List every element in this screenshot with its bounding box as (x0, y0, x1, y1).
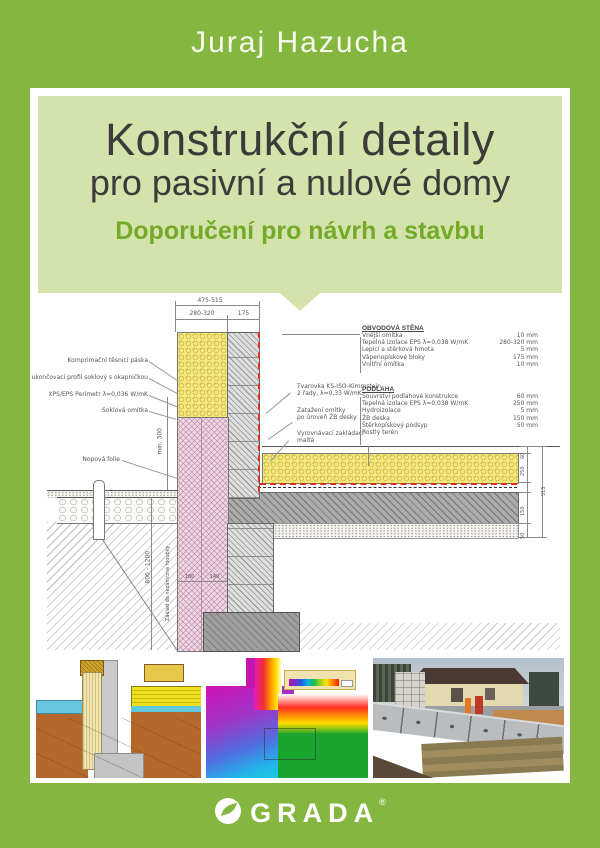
book-subtitle: Doporučení pro návrh a stavbu (38, 217, 562, 246)
leader-line (268, 422, 293, 440)
legend-value: 250 mm (513, 400, 538, 407)
dim-line (175, 305, 260, 306)
legend-value: 280-320 mm (499, 339, 538, 346)
construction-detail-drawing: 475-515 280-320 175 min. 300 800 - 1200 … (30, 293, 570, 655)
foundation-block-wall (227, 523, 274, 614)
legend-floor: PODLAHA Souvrství podlahové konstrukce60… (362, 386, 538, 436)
terrain-hatch-left (47, 522, 177, 650)
legend-row: Hydroizolace5 mm (362, 407, 538, 414)
legend-label: Lepící a stěrková hmota (362, 346, 521, 353)
label-box (144, 664, 184, 682)
dim-min300: min. 300 (156, 419, 163, 455)
leader-line (266, 393, 291, 414)
grada-leaf-icon (214, 797, 242, 830)
legend-value: 50 mm (517, 422, 538, 429)
dim-line (177, 581, 227, 582)
legend-row: Štěrkopískový podsyp50 mm (362, 422, 538, 429)
thumbnail-cad-detail (36, 658, 201, 778)
leader-line (149, 395, 177, 407)
legend-label: Vnější omítka (362, 332, 517, 339)
legend-value: 10 mm (517, 361, 538, 368)
wall-eps-insulation (177, 332, 229, 419)
legend-label: Štěrkopískový podsyp (362, 422, 517, 429)
legend-row: Rostlý terén (362, 429, 538, 436)
gas-bottle (465, 698, 471, 714)
legend-label: Souvrství podlahové konstrukce (362, 393, 517, 400)
legend-bracket (360, 397, 361, 445)
callout-profile: ukončovací profil soklový s okapničkou (30, 374, 148, 381)
callout-kimmstein-l2: 2 řady, λ=0,33 W/mK (297, 390, 362, 397)
dim-ext (519, 482, 531, 483)
dim-right-150: 150 (520, 496, 526, 516)
legend-wall: OBVODOVÁ STĚNA Vnější omítka10 mm Tepeln… (362, 325, 538, 368)
excavator (529, 672, 559, 706)
legend-row: Tepelná izolace EPS λ=0,038 W/mK280-320 … (362, 339, 538, 346)
dim-right-total: 515 (541, 476, 547, 496)
dim-right-50: 50 (520, 519, 526, 539)
legend-row: Souvrství podlahové konstrukce60 mm (362, 393, 538, 400)
callout-plaster: Soklová omítka (30, 407, 148, 414)
author-name: Juraj Hazucha (0, 26, 600, 60)
insulation-band-right (131, 686, 201, 708)
legend-row: Vnější omítka10 mm (362, 332, 538, 339)
house-roof (409, 668, 529, 684)
gravel-drainage (57, 497, 177, 524)
legend-value: 5 mm (521, 346, 538, 353)
thumbnail-thermal-simulation (206, 658, 368, 778)
leader-line (122, 460, 179, 479)
legend-wall-title: OBVODOVÁ STĚNA (362, 325, 538, 332)
contour-outline (264, 728, 316, 760)
xps-joint-line (201, 417, 202, 650)
dim-line (175, 319, 260, 320)
title-pointer-icon (280, 293, 320, 311)
dim-bottom1: 180 (177, 574, 202, 580)
legend-label: Hydroizolace (362, 407, 521, 414)
floor-eps-insulation (262, 453, 519, 484)
scale-legend-box (284, 670, 356, 690)
legend-value: 150 mm (513, 415, 538, 422)
dim-ext (227, 315, 228, 332)
dim-top-total: 475-515 (180, 297, 240, 304)
publisher-logo: GRADA® (0, 797, 600, 830)
publisher-name: GRADA (250, 798, 379, 828)
registered-mark: ® (379, 797, 386, 807)
legend-value: 5 mm (521, 407, 538, 414)
legend-label: Tepelná izolace EPS λ=0,038 W/mK (362, 400, 513, 407)
legend-value: 175 mm (513, 354, 538, 361)
dim-ext (259, 301, 260, 332)
hydro-layer-dashed (258, 487, 517, 488)
dim-top-right: 175 (229, 310, 258, 317)
gas-bottle (475, 696, 483, 714)
airtight-layer-horizontal (260, 483, 517, 485)
color-scale-icon (289, 679, 339, 686)
dim-right-250: 250 (520, 456, 526, 476)
dim-bottom2: 140 (202, 574, 227, 580)
book-cover: Juraj Hazucha Konstrukční detaily pro pa… (0, 0, 600, 848)
leader-line (149, 378, 178, 394)
book-title-line1: Konstrukční detaily (38, 116, 562, 163)
sand-lime-block-wall (227, 332, 260, 499)
callout-omitka-l1: Zatažení omítky (297, 407, 345, 414)
dim-depth: 800 - 1200 (144, 534, 151, 584)
callout-tape: Komprimační těsnicí páska (30, 357, 148, 364)
legend-bracket (360, 337, 361, 373)
dim-ext (519, 492, 531, 493)
book-title-line2: pro pasivní a nulové domy (38, 163, 562, 203)
rc-floor-slab (227, 492, 519, 525)
legend-row: ŽB deska150 mm (362, 415, 538, 422)
wall-step (246, 658, 255, 688)
legend-label: ŽB deska (362, 415, 513, 422)
legend-value: 60 mm (517, 393, 538, 400)
dim-ext (175, 301, 176, 332)
scale-unit-box (341, 680, 353, 687)
foundation-footing (203, 612, 300, 652)
legend-row: Tepelná izolace EPS λ=0,038 W/mK250 mm (362, 400, 538, 407)
callout-nopova: Nopová folie (60, 456, 120, 463)
legend-leader (282, 334, 360, 335)
legend-label: Tepelná izolace EPS λ=0,038 W/mK (362, 339, 499, 346)
dim-frost-note: Základ do nezámrzné hloubky (165, 511, 171, 621)
legend-row: Lepící a stěrková hmota5 mm (362, 346, 538, 353)
thumbnail-site-photo (373, 658, 564, 778)
house-window (485, 688, 495, 700)
callout-omitka-l2: po úroveň ŽB desky (297, 414, 357, 421)
legend-label: Vápenopískové bloky (362, 354, 513, 361)
legend-label: Vnitřní omítka (362, 361, 517, 368)
legend-row: Vápenopískové bloky175 mm (362, 354, 538, 361)
wood-planks (421, 737, 564, 778)
legend-floor-title: PODLAHA (362, 386, 538, 393)
legend-value: 10 mm (517, 332, 538, 339)
callout-xps: XPS/EPS Perimetr λ=0,036 W/mK (30, 391, 148, 398)
leader-line (149, 361, 179, 382)
drain-profile (93, 480, 105, 540)
isolines-overlay (36, 718, 201, 778)
callout-malta-l2: malta (297, 437, 314, 444)
callout-malta-l1: Vyrovnávací zakládací (297, 430, 364, 437)
house-window (451, 688, 463, 702)
gravel-sand-subbase (273, 523, 519, 539)
legend-row: Vnitřní omítka10 mm (362, 361, 538, 368)
dim-top-left: 280-320 (177, 310, 227, 317)
title-panel: Konstrukční detaily pro pasivní a nulové… (38, 96, 562, 293)
legend-leader (368, 446, 369, 466)
legend-label: Rostlý terén (362, 429, 538, 436)
airtight-layer-vertical (258, 332, 260, 492)
finish-floor-line (262, 446, 560, 447)
